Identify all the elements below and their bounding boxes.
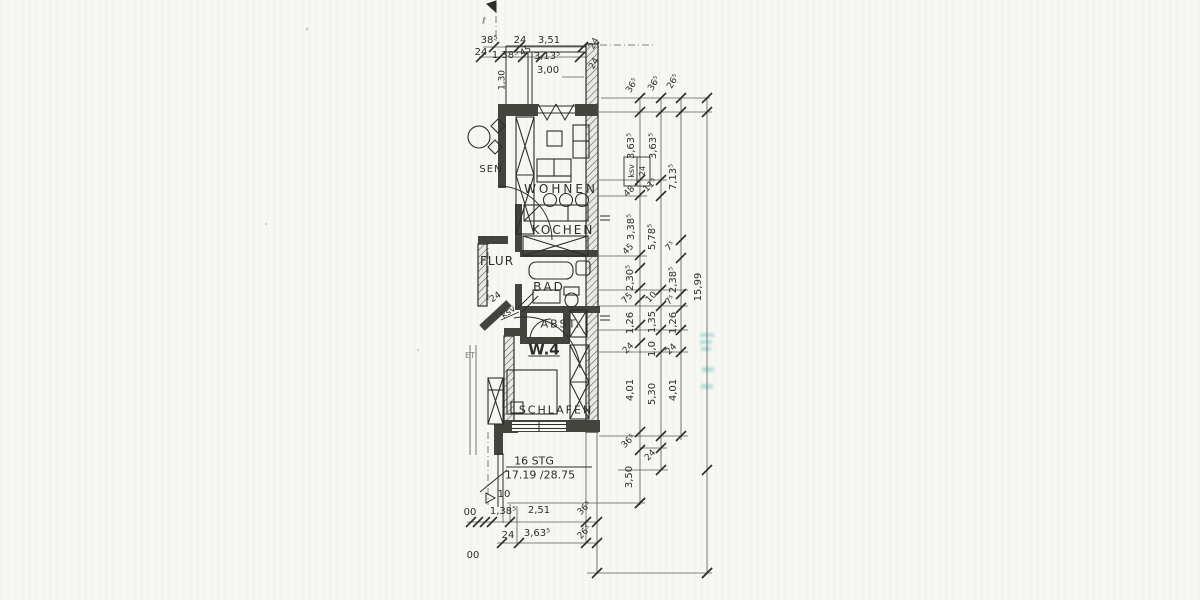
level-marker-triangle [486,493,495,503]
sofa [537,159,571,182]
floorplan-drawing [0,0,1200,600]
shaft [488,378,503,424]
scan-specks [265,27,419,351]
section-flag [487,1,496,12]
bathtub [529,262,573,279]
diagonal-wall [482,303,509,328]
toilet [564,287,579,307]
wardrobe-abst [570,310,587,337]
scanned-floorplan-page: WOHNENKOCHENFLURBADABST.SCHLAFENSENW.416… [0,0,1200,600]
table [547,131,562,146]
stair-lines [480,453,592,507]
